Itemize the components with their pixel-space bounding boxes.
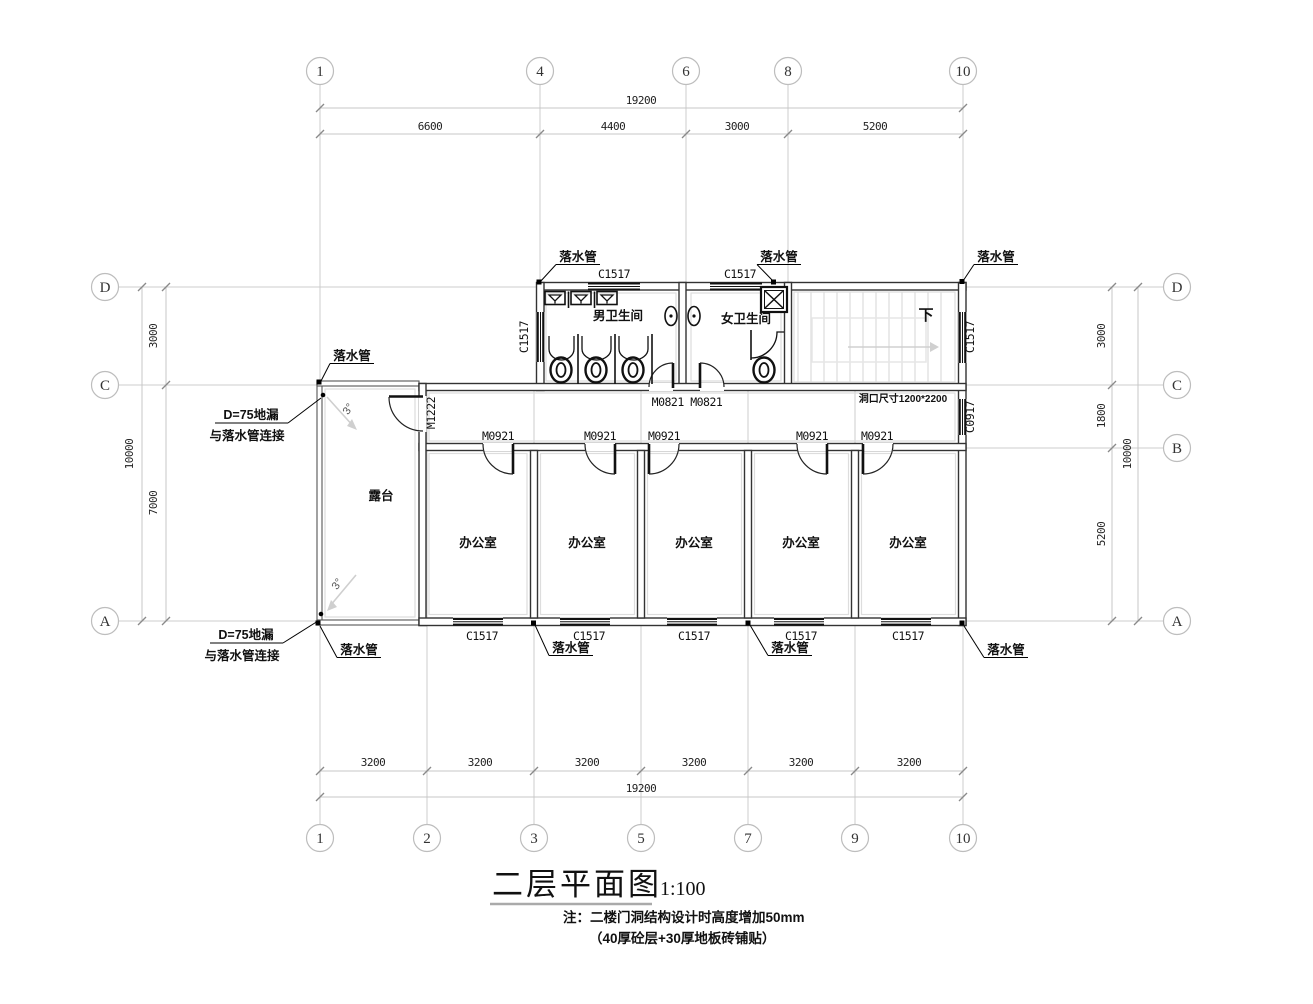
wc-icon	[623, 358, 644, 383]
staircase	[798, 292, 941, 382]
window-label-c1517: C1517	[517, 320, 531, 353]
dim-bot-total: 19200	[626, 782, 657, 795]
door-label-m0821-pair: M0821 M0821	[652, 395, 723, 409]
downpipe-note-bottom-1: 落水管	[316, 621, 382, 658]
room-label-office-5: 办公室	[889, 535, 927, 550]
dim-left-total: 10000	[123, 439, 136, 470]
window-label-c1517: C1517	[678, 629, 711, 643]
window-label-c0917: C0917	[963, 400, 977, 433]
window-c1517-west	[537, 312, 545, 362]
downpipe-label: 落水管	[559, 249, 597, 264]
window-c1517-office-1	[453, 618, 503, 626]
door-office-5	[863, 443, 893, 474]
dim-top-seg-3: 3000	[725, 120, 750, 133]
door-office-2	[585, 443, 615, 474]
dim-bot-seg-5: 3200	[789, 756, 814, 769]
wall-grid6	[679, 283, 686, 385]
dim-right-seg-1: 3000	[1095, 324, 1108, 349]
window-c1517-office-5	[881, 618, 931, 626]
drawing-note-2: （40厚砼层+30厚地板砖铺贴）	[589, 930, 775, 946]
wall-corridor-north	[419, 384, 966, 391]
dim-bot-seg-4: 3200	[682, 756, 707, 769]
window-c1517-office-4	[774, 618, 824, 626]
window-c1517-women-top	[710, 283, 762, 291]
room-label-terrace: 露台	[368, 488, 393, 503]
dim-right-seg-3: 5200	[1095, 522, 1108, 547]
downpipe-label: 落水管	[333, 348, 371, 363]
wc-icon	[586, 358, 607, 383]
floor-plan-drawing: 19200 6600 4400 3000 5200 3200 3200 3200…	[0, 0, 1313, 1004]
stair-down-label: 下	[918, 307, 933, 324]
downpipe-note-top-2: 落水管	[757, 249, 801, 285]
door-label-m0921: M0921	[584, 429, 617, 443]
wall-partition-grid5	[638, 451, 645, 619]
wall-partition-grid7	[745, 451, 752, 619]
basin-icon	[688, 307, 700, 326]
window-label-c1517: C1517	[598, 267, 631, 281]
window-c1517-office-3	[667, 618, 717, 626]
door-label-m0921: M0921	[861, 429, 894, 443]
door-label-m0921: M0921	[482, 429, 515, 443]
floor-drain-note-bottom: D=75地漏 与落水管连接	[204, 612, 323, 663]
grid-bubble-bot-7: 7	[744, 831, 752, 847]
dim-top-seg-4: 5200	[863, 120, 888, 133]
drain-note-line2: 与落水管连接	[204, 648, 280, 663]
dim-left-seg-1: 3000	[147, 324, 160, 349]
downpipe-note-top-1: 落水管	[537, 249, 601, 285]
grid-bubble-top-10: 10	[956, 64, 971, 80]
downpipe-note-top-3: 落水管	[960, 249, 1019, 284]
grid-bubble-right-c: C	[1172, 378, 1182, 394]
window-label-c1517: C1517	[963, 320, 977, 353]
dim-right-total: 10000	[1121, 439, 1134, 470]
room-label-office-3: 办公室	[675, 535, 713, 550]
room-label-men-toilet: 男卫生间	[593, 308, 643, 323]
window-label-c1517: C1517	[785, 629, 818, 643]
door-terrace	[389, 396, 427, 432]
dim-top-seg-1: 6600	[418, 120, 443, 133]
window-label-c1517: C1517	[724, 267, 757, 281]
toilet-fixtures	[545, 287, 787, 384]
downpipe-note-bottom-4: 落水管	[960, 621, 1029, 658]
wc-icon	[754, 358, 775, 383]
grid-bubble-top-6: 6	[682, 64, 690, 80]
door-label-m0921: M0921	[648, 429, 681, 443]
dim-left-seg-2: 7000	[147, 491, 160, 516]
grid-bubble-bot-5: 5	[637, 831, 645, 847]
floor-plan-page: 19200 6600 4400 3000 5200 3200 3200 3200…	[0, 0, 1313, 1004]
grid-bubble-bot-1: 1	[316, 831, 324, 847]
grid-bubble-top-8: 8	[784, 64, 792, 80]
grid-bubble-top-4: 4	[536, 64, 544, 80]
drain-note-line1: D=75地漏	[218, 627, 274, 642]
grid-bubble-bot-2: 2	[423, 831, 431, 847]
shaft-box-icon	[761, 287, 787, 312]
wc-icon	[551, 358, 572, 383]
toilet-stalls	[549, 330, 784, 384]
dim-top-seg-2: 4400	[601, 120, 626, 133]
room-label-office-4: 办公室	[782, 535, 820, 550]
basin-icon	[665, 307, 677, 326]
drain-note-line2: 与落水管连接	[209, 428, 285, 443]
grid-bubble-top-1: 1	[316, 64, 324, 80]
door-label-m0921: M0921	[796, 429, 829, 443]
window-label-c1517: C1517	[466, 629, 499, 643]
window-label-c1517: C1517	[573, 629, 606, 643]
grid-bubble-bot-10: 10	[956, 831, 971, 847]
downpipe-note-left: 落水管	[317, 348, 375, 385]
grid-bubble-right-b: B	[1172, 441, 1182, 457]
room-label-office-2: 办公室	[568, 535, 606, 550]
drain-note-line1: D=75地漏	[223, 407, 279, 422]
door-office-3	[649, 443, 679, 474]
drawing-title: 二层平面图	[492, 867, 662, 902]
grid-bubble-left-d: D	[100, 280, 111, 296]
wall-partition-grid9	[852, 451, 859, 619]
grid-bubble-bot-9: 9	[851, 831, 859, 847]
dim-top-total: 19200	[626, 94, 657, 107]
room-label-office-1: 办公室	[459, 535, 497, 550]
code-labels: C1517 C1517 C1517 C1517 C0917 C1517 C151…	[424, 267, 977, 643]
door-office-1	[483, 443, 513, 474]
title-block: 二层平面图 1:100 注：二楼门洞结构设计时高度增加50mm （40厚砼层+3…	[490, 867, 805, 946]
dim-bot-seg-3: 3200	[575, 756, 600, 769]
floor-drain-note-top: D=75地漏 与落水管连接	[209, 393, 325, 443]
wall-partition-grid3	[531, 451, 538, 619]
grid-bubble-bot-3: 3	[530, 831, 538, 847]
slope-arrowhead-2-icon	[327, 600, 337, 611]
window-label-c1517: C1517	[892, 629, 925, 643]
grid-bubble-left-c: C	[100, 378, 110, 394]
stair-handrail	[812, 318, 926, 362]
door-office-4	[797, 443, 827, 474]
window-c1517-men-top	[588, 283, 640, 291]
downpipe-label: 落水管	[340, 642, 378, 657]
window-c1517-office-2	[560, 618, 610, 626]
door-women-toilet	[700, 363, 724, 391]
dim-bot-seg-2: 3200	[468, 756, 493, 769]
downpipe-label: 落水管	[987, 642, 1025, 657]
room-label-women-toilet: 女卫生间	[721, 311, 771, 326]
dim-bot-seg-1: 3200	[361, 756, 386, 769]
drawing-scale: 1:100	[660, 878, 706, 900]
terrace: 3° 3°	[317, 381, 419, 625]
downpipe-label: 落水管	[977, 249, 1015, 264]
dim-bot-seg-6: 3200	[897, 756, 922, 769]
stair-direction-arrow-icon	[930, 342, 939, 352]
drawing-note-1: 注：二楼门洞结构设计时高度增加50mm	[563, 909, 805, 925]
grid-bubble-right-d: D	[1172, 280, 1183, 296]
opening-size-note: 洞口尺寸1200*2200	[859, 392, 948, 405]
grid-bubble-left-a: A	[100, 614, 111, 630]
grid-bubble-right-a: A	[1172, 614, 1183, 630]
door-label-m1222: M1222	[424, 397, 438, 429]
downpipe-label: 落水管	[760, 249, 798, 264]
dim-right-seg-2: 1800	[1095, 404, 1108, 429]
